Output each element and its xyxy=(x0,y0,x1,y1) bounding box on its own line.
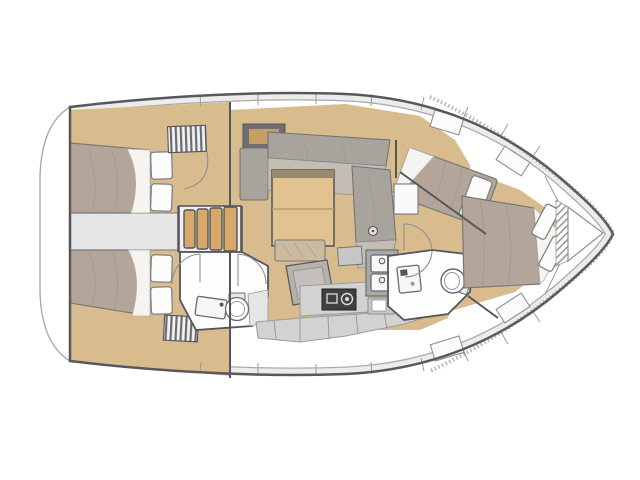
aft-port-pillow-1 xyxy=(151,152,173,180)
floor-plan-canvas xyxy=(0,0,640,480)
aft-head xyxy=(180,252,268,330)
yacht-floor-plan xyxy=(0,0,640,480)
engine-compartment xyxy=(70,213,178,250)
louvered-locker-port xyxy=(168,125,207,152)
aft-starboard-pillow-1 xyxy=(151,255,173,283)
swim-platform xyxy=(40,107,70,361)
aft-head-sink xyxy=(195,296,227,319)
stove xyxy=(322,289,356,310)
mast-post-center xyxy=(372,230,375,233)
salon-table xyxy=(272,170,334,246)
aft-head-toilet xyxy=(226,298,249,321)
shower-panel xyxy=(248,290,268,326)
step-tread xyxy=(184,210,195,248)
aft-port-pillow-2 xyxy=(151,184,173,212)
settee-left-arm xyxy=(240,148,268,200)
step-tread xyxy=(197,209,208,249)
nav-seat xyxy=(275,240,325,261)
chain-hatch xyxy=(556,200,568,266)
side-cabinet xyxy=(337,246,362,266)
step-tread xyxy=(224,207,237,251)
aft-starboard-pillow-2 xyxy=(151,287,173,315)
companionway-steps xyxy=(179,206,241,252)
step-tread xyxy=(210,208,222,250)
forward-cabin-locker xyxy=(394,184,418,214)
faucet-icon xyxy=(400,269,408,276)
forward-head-sink xyxy=(397,265,422,293)
owner-berth xyxy=(462,196,540,288)
